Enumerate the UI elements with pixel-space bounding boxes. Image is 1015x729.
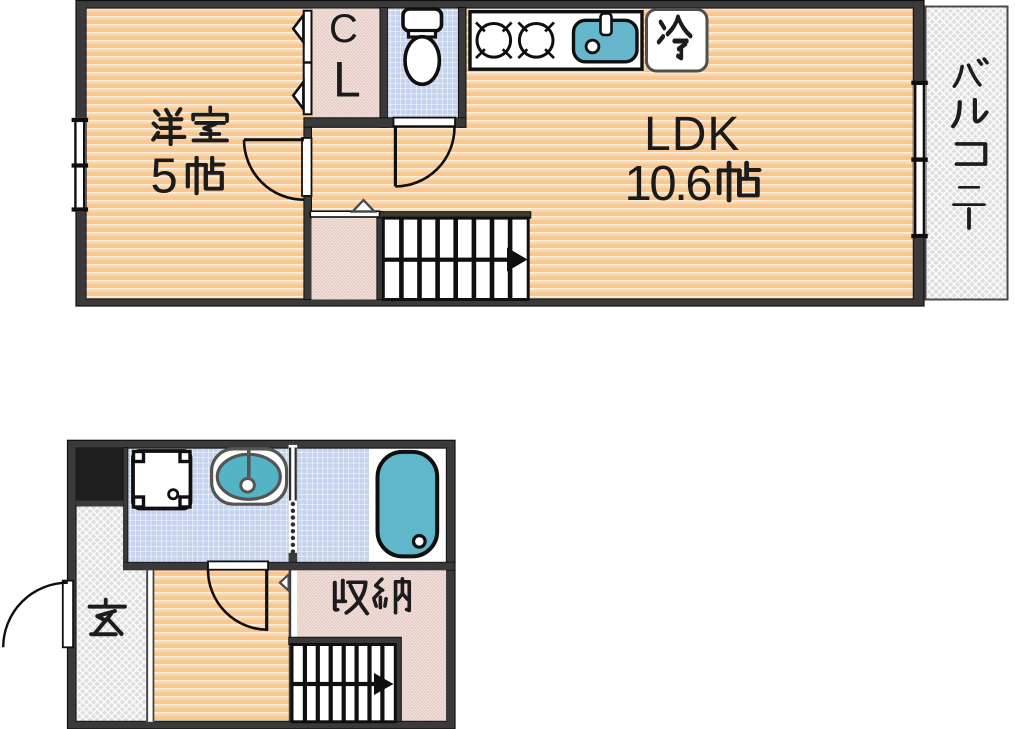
- svg-text:L: L: [333, 52, 361, 108]
- svg-text:5: 5: [151, 150, 178, 204]
- svg-text:10.6: 10.6: [625, 157, 712, 211]
- svg-text:C: C: [329, 7, 358, 51]
- svg-text:LDK: LDK: [644, 108, 740, 161]
